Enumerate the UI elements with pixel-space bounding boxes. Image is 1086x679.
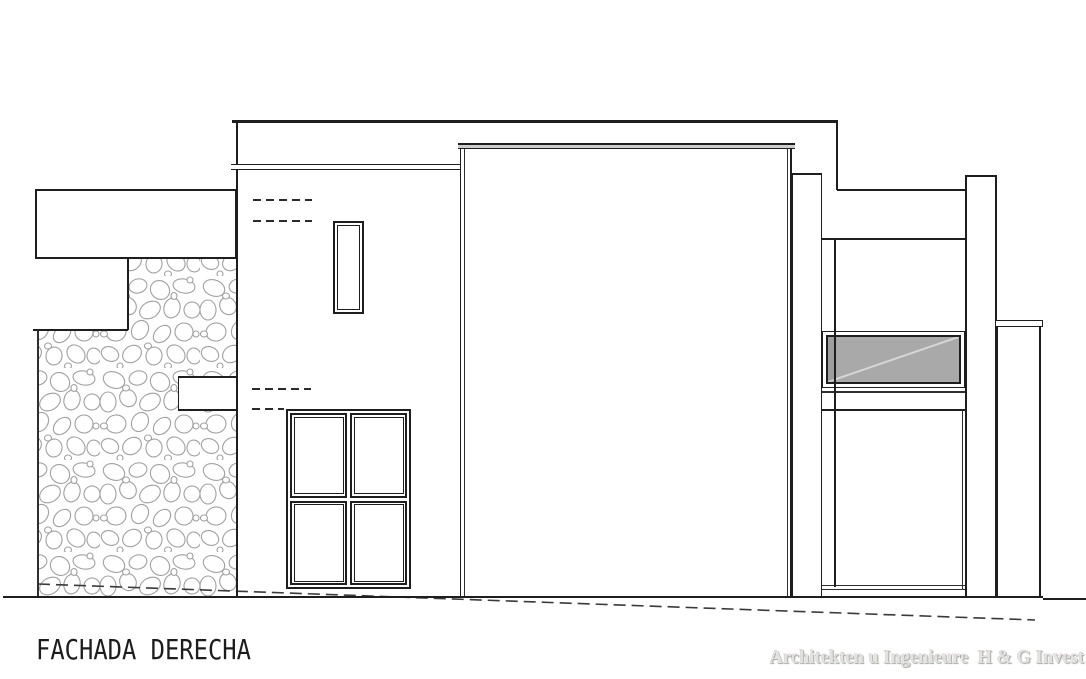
main-wall-left-edge <box>236 122 238 597</box>
door-threshold-line-2 <box>822 589 965 591</box>
narrow-window <box>333 221 364 314</box>
stone-recess-opening <box>178 376 237 411</box>
level-marker-dash <box>253 220 312 222</box>
window-pane <box>350 413 407 498</box>
level-marker-dash <box>252 408 284 410</box>
main-wall-right-edge-lower <box>834 238 836 587</box>
level-marker-dash <box>253 199 312 201</box>
balcony-sill-line-2 <box>822 409 965 411</box>
left-canopy <box>35 189 237 259</box>
window-pane <box>290 501 347 586</box>
front-panel-inner-right-line <box>787 149 789 597</box>
narrow-window-glass <box>337 225 360 310</box>
left-step-line <box>33 329 128 331</box>
window-pane <box>350 501 407 586</box>
four-pane-window <box>286 409 411 589</box>
stone-left-edge <box>37 330 39 597</box>
watermark-text: Architekten u Ingenieure H & G Invest <box>700 648 1084 669</box>
door-threshold-line-1 <box>822 585 965 587</box>
far-right-wall <box>997 327 1041 597</box>
ground-line <box>3 596 1043 598</box>
drawing-title: FACHADA DERECHA <box>36 633 251 666</box>
left-step-vertical <box>127 259 129 330</box>
right-pillar <box>965 175 997 597</box>
elevation-drawing: FACHADA DERECHA Architekten u Ingenieure… <box>0 0 1086 679</box>
main-wall-right-edge-upper <box>836 123 838 190</box>
level-marker-dash <box>252 388 311 390</box>
parapet-band <box>231 164 461 170</box>
front-panel-inner-left-line <box>464 149 466 597</box>
far-right-wall-cap <box>995 320 1043 327</box>
left-pillar <box>792 173 822 597</box>
main-roof-line <box>232 120 838 123</box>
beam-line-top <box>837 189 966 191</box>
beam-line-bottom <box>822 238 966 240</box>
balcony-sill-line-1 <box>822 391 965 393</box>
window-pane <box>290 413 347 498</box>
ground-line-right-step <box>1043 598 1086 600</box>
balcony-window-glass <box>826 335 961 384</box>
door-inner-right-line <box>962 410 964 589</box>
front-facade-panel <box>460 149 792 597</box>
